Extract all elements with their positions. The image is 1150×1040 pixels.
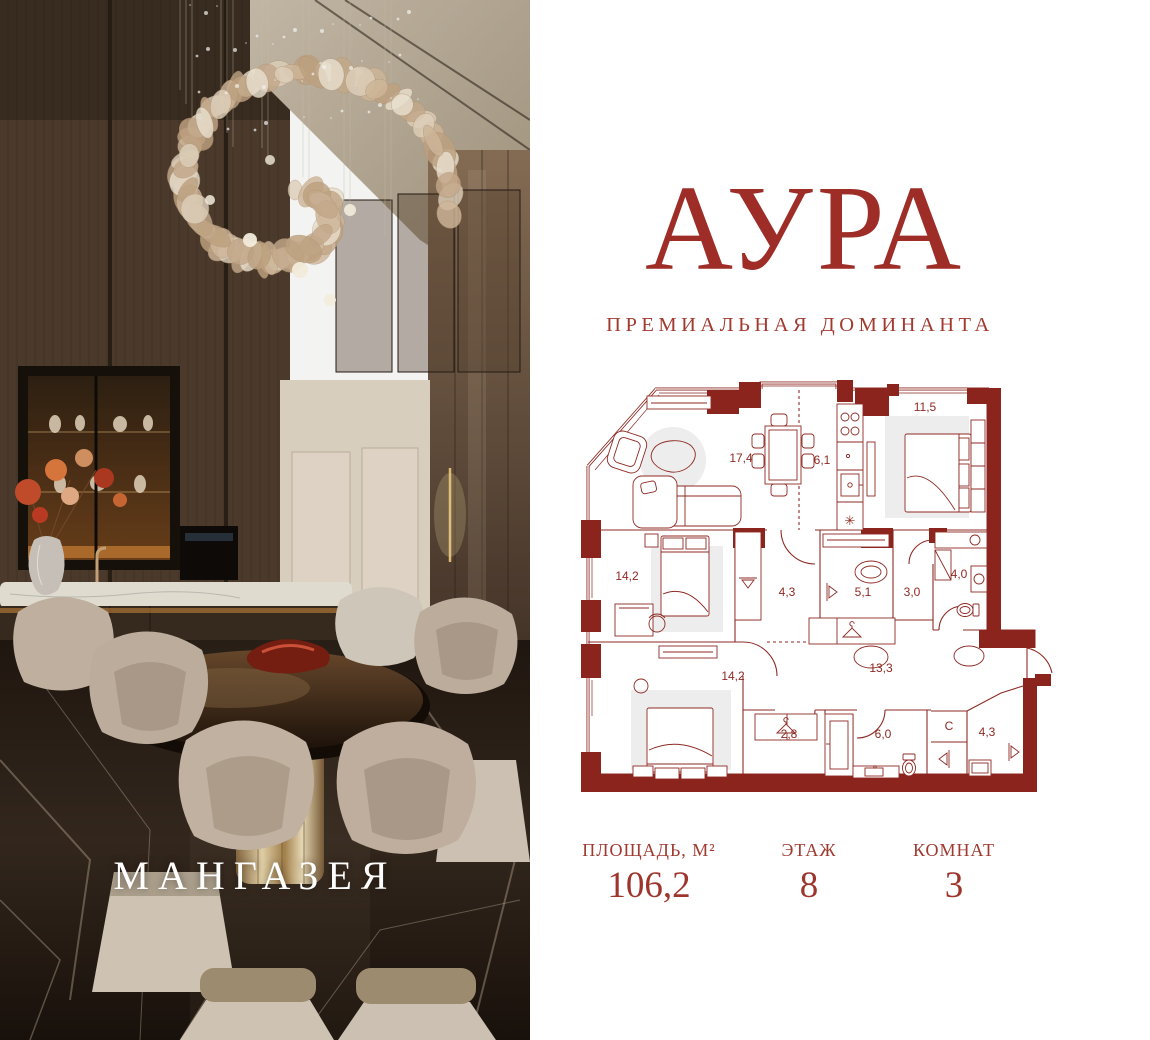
door-swing-icon bbox=[1009, 743, 1019, 761]
stat-rooms-label: КОМНАТ bbox=[880, 840, 1028, 861]
stat-floor: ЭТАЖ 8 bbox=[738, 840, 880, 907]
stat-floor-value: 8 bbox=[738, 864, 880, 907]
room-area-label: 4,3 bbox=[779, 585, 796, 599]
flat-stats: ПЛОЩАДЬ, М² 106,2 ЭТАЖ 8 КОМНАТ 3 bbox=[560, 840, 1028, 907]
stat-rooms-value: 3 bbox=[880, 864, 1028, 907]
door-swing-icon bbox=[827, 583, 837, 601]
flat-card: МАНГАЗЕЯ АУРА ПРЕМИАЛЬНАЯ ДОМИНАНТА bbox=[0, 0, 1150, 1040]
room-area-label: 14,2 bbox=[721, 669, 745, 683]
stat-floor-label: ЭТАЖ bbox=[738, 840, 880, 861]
project-logo: АУРА bbox=[645, 168, 965, 290]
stat-area: ПЛОЩАДЬ, М² 106,2 bbox=[560, 840, 738, 907]
room-area-label: 6,1 bbox=[814, 453, 831, 467]
stat-rooms: КОМНАТ 3 bbox=[880, 840, 1028, 907]
room-area-label: 13,3 bbox=[869, 661, 893, 675]
stat-area-value: 106,2 bbox=[560, 864, 738, 907]
room-area-label: 4,3 bbox=[979, 725, 996, 739]
room-area-label: 6,0 bbox=[875, 727, 892, 741]
room-area-label: 4,0 bbox=[951, 567, 968, 581]
fridge-icon: ✳ bbox=[845, 514, 856, 529]
room-area-label: 11,5 bbox=[914, 400, 937, 414]
room-area-label: 17,4 bbox=[729, 451, 753, 465]
floor-plan: ✳ 17,46,111,514,24,35,13,04,014,213,32,8… bbox=[575, 380, 1053, 800]
room-area-label: 2,8 bbox=[781, 727, 798, 741]
room-area-label: С bbox=[945, 719, 954, 733]
stat-area-label: ПЛОЩАДЬ, М² bbox=[560, 840, 738, 861]
room-area-label: 5,1 bbox=[855, 585, 872, 599]
room-area-label: 3,0 bbox=[904, 585, 921, 599]
door-swing-icon bbox=[939, 750, 949, 768]
toilet-icon bbox=[903, 754, 916, 776]
room-area-label: 14,2 bbox=[615, 569, 639, 583]
developer-name: МАНГАЗЕЯ bbox=[113, 852, 396, 899]
toilet-icon bbox=[957, 604, 979, 617]
project-tagline: ПРЕМИАЛЬНАЯ ДОМИНАНТА bbox=[606, 314, 994, 337]
